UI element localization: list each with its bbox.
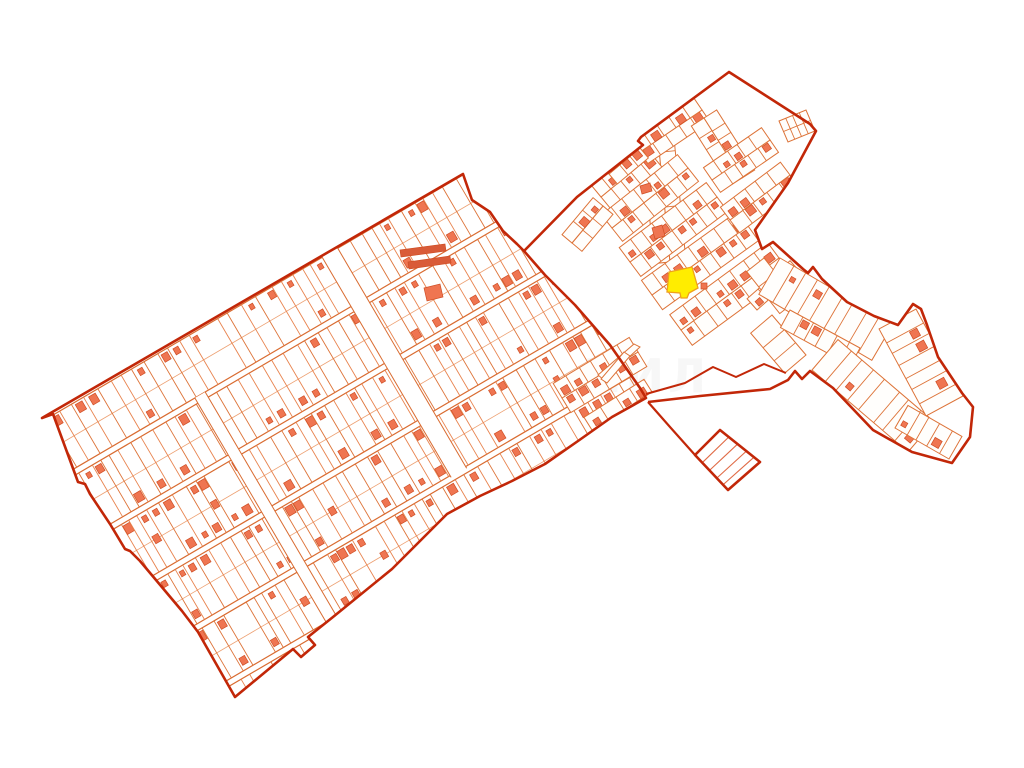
building xyxy=(277,408,286,418)
building xyxy=(432,317,442,327)
parcel-strip xyxy=(213,696,219,706)
parcel-strip xyxy=(327,328,357,380)
building xyxy=(157,479,167,489)
building xyxy=(417,201,429,213)
building xyxy=(371,455,381,466)
building xyxy=(451,406,463,418)
parcel-strip xyxy=(566,264,596,316)
parcel-strip xyxy=(537,281,567,333)
parcel-strip xyxy=(369,604,375,614)
parcel-strip xyxy=(311,413,341,465)
building xyxy=(462,402,471,412)
building xyxy=(255,525,263,533)
parcel-strip xyxy=(305,341,335,393)
building xyxy=(567,465,574,472)
building xyxy=(231,513,238,520)
parcel-strip xyxy=(318,333,348,385)
parcel-strip xyxy=(508,298,538,350)
parcel-strip xyxy=(255,296,284,345)
parcel-strip xyxy=(98,389,127,438)
building xyxy=(546,428,554,436)
parcel-strip xyxy=(342,472,371,522)
parcel-strip xyxy=(271,437,301,489)
building xyxy=(645,418,654,427)
parcel-strip xyxy=(262,365,292,417)
parcel-strip xyxy=(227,386,257,438)
building xyxy=(146,409,155,418)
parcel-strip xyxy=(636,448,642,458)
parcel-strip xyxy=(92,465,122,517)
parcel-strip xyxy=(194,633,223,683)
building xyxy=(523,291,531,300)
parcel-strip xyxy=(227,313,256,362)
building xyxy=(178,413,190,425)
building xyxy=(328,506,337,516)
building xyxy=(201,531,208,538)
parcel-strip xyxy=(175,417,205,469)
building xyxy=(188,563,197,572)
road-edge xyxy=(205,392,337,618)
parcel-strip xyxy=(180,641,209,691)
building xyxy=(161,352,171,363)
parcel-strip xyxy=(583,479,589,489)
building xyxy=(439,540,446,548)
building xyxy=(212,522,222,533)
building xyxy=(133,491,145,503)
building xyxy=(241,504,253,516)
road-edge xyxy=(168,371,641,648)
parcel-strip xyxy=(380,598,386,608)
building xyxy=(517,346,524,353)
parcel-strip xyxy=(60,411,89,460)
parcel-strip xyxy=(249,373,279,425)
building xyxy=(89,393,100,405)
parcel-strip xyxy=(153,430,183,482)
parcel-strip xyxy=(275,585,304,635)
building xyxy=(239,655,249,665)
parcel-strip xyxy=(400,586,406,596)
parcel-strip xyxy=(355,612,361,622)
building xyxy=(434,343,442,351)
building xyxy=(512,270,523,281)
building xyxy=(298,396,307,406)
parcel-strip xyxy=(293,275,322,324)
building xyxy=(380,550,389,559)
parcel-strip xyxy=(464,247,494,299)
parcel-strip xyxy=(469,398,498,448)
parcel-strip xyxy=(218,319,247,368)
building xyxy=(287,280,294,287)
parcel-strip xyxy=(298,345,328,397)
parcel-strip xyxy=(71,404,100,453)
building xyxy=(379,299,386,307)
building xyxy=(574,334,586,346)
parcel-strip xyxy=(442,187,471,236)
building xyxy=(384,224,391,231)
building xyxy=(533,206,544,218)
parcel-strip xyxy=(467,322,497,374)
parcel-strip xyxy=(443,260,473,312)
building xyxy=(346,544,356,554)
parcel-strip xyxy=(141,437,171,489)
parcel-strip xyxy=(591,474,597,484)
parcel-strip xyxy=(238,380,268,432)
parcel-strip xyxy=(486,536,492,546)
parcel-strip xyxy=(195,558,224,608)
building xyxy=(152,508,160,516)
parcel-strip xyxy=(434,566,440,576)
building xyxy=(276,561,283,569)
parcel-strip xyxy=(189,335,218,384)
parcel-strip xyxy=(465,174,494,223)
building xyxy=(435,465,446,477)
parcel-strip xyxy=(490,159,519,208)
parcel-strip xyxy=(375,526,404,576)
parcel-strip xyxy=(529,436,558,486)
building xyxy=(288,428,296,437)
parcel-strip xyxy=(378,451,407,501)
lot-line xyxy=(710,444,738,470)
parcel-strip xyxy=(649,440,655,450)
parcel-strip xyxy=(388,219,417,268)
parcel-strip xyxy=(272,360,302,412)
parcel-strip xyxy=(334,400,364,452)
parcel-strip xyxy=(541,429,570,479)
parcel-strip xyxy=(464,475,493,525)
parcel-strip xyxy=(282,431,312,483)
building xyxy=(408,510,415,517)
road-edge xyxy=(164,366,637,643)
cadastral-map[interactable]: НИЛ xyxy=(0,0,1024,768)
building xyxy=(511,221,520,230)
parcel-strip xyxy=(518,292,548,344)
parcel-strip xyxy=(498,528,504,538)
parcel-strip xyxy=(546,500,552,510)
mid-line xyxy=(117,285,590,562)
parcel-strip xyxy=(457,553,463,563)
building xyxy=(185,537,196,549)
building xyxy=(200,554,211,565)
building xyxy=(86,471,93,478)
road-edge xyxy=(99,254,572,531)
building xyxy=(399,287,407,296)
parcel-strip xyxy=(209,550,238,600)
parcel-strip xyxy=(84,397,113,446)
building xyxy=(489,388,497,396)
connector-boundary xyxy=(648,402,695,455)
building xyxy=(266,417,273,424)
road-edge xyxy=(135,316,608,593)
parcel-strip xyxy=(418,274,448,326)
parcel-strip xyxy=(281,281,310,330)
parcel-strip xyxy=(456,179,485,228)
road-edge xyxy=(102,259,575,536)
parcel-strip xyxy=(131,443,161,495)
parcel-strip xyxy=(172,495,202,547)
parcel-strip xyxy=(334,625,340,635)
building xyxy=(180,464,190,475)
parcel-strip xyxy=(344,619,350,629)
parcel-strip xyxy=(355,388,385,440)
parcel-strip xyxy=(532,509,538,519)
building xyxy=(317,263,324,270)
building xyxy=(442,337,451,347)
parcel-strip xyxy=(335,476,364,526)
parcel-strip xyxy=(118,450,148,502)
parcel-strip xyxy=(517,443,546,493)
parcel-strip xyxy=(214,621,243,671)
building xyxy=(318,309,326,317)
building xyxy=(152,533,162,543)
building xyxy=(179,570,186,577)
parcel-strip xyxy=(158,354,187,403)
building xyxy=(300,596,310,607)
building xyxy=(173,346,181,355)
parcel-strip xyxy=(147,510,177,562)
building xyxy=(615,437,622,444)
parcel-strip xyxy=(224,615,253,665)
building xyxy=(350,392,358,400)
parcel-strip xyxy=(471,544,477,554)
parcel-strip xyxy=(323,483,352,533)
parcel-strip xyxy=(509,448,538,498)
parcel-strip xyxy=(455,253,485,305)
parcel-strip xyxy=(448,333,478,385)
building xyxy=(411,329,422,341)
building xyxy=(193,335,201,343)
lot-line xyxy=(702,437,729,463)
building xyxy=(493,283,501,291)
parcel-strip xyxy=(202,628,231,678)
building xyxy=(446,483,458,495)
parcel-strip xyxy=(362,234,391,283)
parcel-strip xyxy=(180,341,209,390)
building xyxy=(494,159,501,166)
building xyxy=(494,430,506,442)
parcel-strip xyxy=(430,344,460,396)
building xyxy=(502,275,513,287)
building xyxy=(123,522,135,534)
parcel-strip xyxy=(145,587,174,637)
building xyxy=(381,498,390,508)
building xyxy=(75,401,86,413)
building xyxy=(190,485,199,494)
building xyxy=(542,357,549,364)
parcel-strip xyxy=(131,369,160,418)
building xyxy=(470,295,480,305)
parcel-strip xyxy=(412,579,418,589)
parcel-strip xyxy=(391,443,420,493)
building xyxy=(317,411,326,420)
building xyxy=(388,419,398,430)
building xyxy=(418,478,425,485)
parcel-strip xyxy=(427,571,433,581)
parcel-strip xyxy=(629,452,635,462)
building xyxy=(426,499,434,507)
building xyxy=(470,472,479,482)
parcel-strip xyxy=(442,487,471,537)
parcel-strip xyxy=(570,487,576,497)
building xyxy=(404,484,414,494)
building xyxy=(534,434,543,444)
building xyxy=(397,514,407,524)
lot-line xyxy=(717,451,747,478)
building xyxy=(284,479,295,491)
parcel-strip xyxy=(656,436,662,446)
building xyxy=(357,538,365,547)
building xyxy=(305,415,317,427)
building xyxy=(701,283,707,289)
parcel-strip xyxy=(560,492,566,502)
parcel-strip xyxy=(621,457,627,467)
parcel-strip xyxy=(355,464,384,514)
parcel-strip xyxy=(606,465,612,475)
building xyxy=(163,499,174,511)
parcel-strip xyxy=(230,537,259,587)
parcel-strip xyxy=(221,543,250,593)
building xyxy=(424,284,443,301)
building xyxy=(523,487,534,499)
building xyxy=(267,290,276,300)
parcel-strip xyxy=(324,631,330,641)
parcel-strip xyxy=(430,494,459,544)
parcel-strip xyxy=(499,154,528,203)
parcel-strip xyxy=(438,339,468,391)
building xyxy=(249,303,256,310)
quarter-boundary xyxy=(42,174,646,697)
road-edge xyxy=(336,246,466,469)
parcel-strip xyxy=(325,405,355,457)
building xyxy=(268,591,276,599)
parcel-strip xyxy=(121,375,150,424)
building xyxy=(198,478,210,490)
parcel-strip xyxy=(445,560,451,570)
parcel-strip xyxy=(503,378,532,428)
parcel-strip xyxy=(186,486,216,538)
parcel-strip xyxy=(158,503,188,555)
building xyxy=(217,619,227,630)
parcel-strip xyxy=(272,287,301,336)
road-edge xyxy=(132,311,605,588)
parcel-strip xyxy=(496,382,525,432)
building xyxy=(514,494,524,504)
building xyxy=(379,376,386,383)
building xyxy=(530,411,539,420)
building xyxy=(312,389,320,398)
parcel-strip xyxy=(144,362,173,411)
parcel-strip xyxy=(313,489,342,539)
parcel-strip xyxy=(599,469,605,479)
building xyxy=(543,476,554,487)
parcel-strip xyxy=(367,457,396,507)
building xyxy=(513,192,523,203)
building xyxy=(150,586,158,594)
parcel-strip xyxy=(283,353,313,405)
building xyxy=(310,338,320,348)
parcel-strip xyxy=(517,517,523,527)
parcel-strip xyxy=(111,381,140,430)
parcel-strip xyxy=(241,305,270,354)
building xyxy=(604,317,616,329)
parcel-strip xyxy=(455,480,484,530)
building xyxy=(411,280,418,288)
parcel-strip xyxy=(167,348,196,397)
building xyxy=(141,515,149,523)
parcel-strip xyxy=(508,523,514,533)
building xyxy=(137,367,145,375)
parcel-strip xyxy=(389,593,395,603)
cross-road xyxy=(321,246,467,478)
building xyxy=(338,447,350,459)
parcel-strip xyxy=(166,422,196,474)
building xyxy=(413,429,424,440)
building xyxy=(408,209,415,216)
